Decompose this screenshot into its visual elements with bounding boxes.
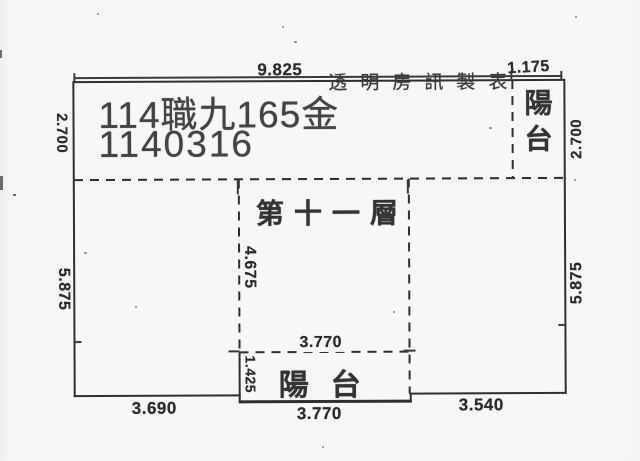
scan-speck <box>97 13 99 15</box>
balcony-bottom-right-wall <box>410 393 412 402</box>
floor-level-label: 第十一層 <box>256 192 408 233</box>
outer-wall-right <box>563 79 566 394</box>
outer-wall-bottom-right <box>410 392 567 395</box>
scan-speck <box>393 311 395 313</box>
dim-inner-width: 3.770 <box>296 334 345 352</box>
dim-bottom-middle: 3.770 <box>297 404 342 424</box>
dim-tick <box>229 350 240 352</box>
balcony-tr-left-dashed <box>511 80 513 177</box>
date-code-label: 1140316 <box>99 123 254 166</box>
scan-speck <box>575 16 577 18</box>
scan-speck <box>322 446 324 448</box>
dim-bottom-right: 3.540 <box>459 395 504 415</box>
scan-edge-smudge <box>0 176 3 190</box>
outer-wall-left <box>72 81 75 397</box>
dim-tick <box>560 71 562 80</box>
dim-inner-height: 4.675 <box>240 246 258 289</box>
dim-balcony-height: 1.425 <box>243 355 259 393</box>
dim-right-upper: 2.700 <box>568 119 585 159</box>
scan-speck <box>135 306 137 308</box>
publisher-watermark: 透明房訊製表 <box>328 67 520 95</box>
dim-tick <box>75 341 81 343</box>
scan-speck <box>294 41 297 43</box>
balcony-bottom-left-wall <box>239 352 241 402</box>
balcony-top-right-label: 陽台 <box>516 88 556 160</box>
floor-plan-drawing: 9.825 1.175 2.700 5.875 2.700 5.875 4.67… <box>0 0 640 461</box>
inner-room-right-dashed <box>408 179 411 394</box>
dim-right-lower: 5.875 <box>568 262 586 305</box>
scan-speck <box>282 26 284 28</box>
scan-speck <box>574 179 576 181</box>
scan-speck <box>84 252 87 254</box>
balcony-bottom-label: 陽台 <box>279 360 383 404</box>
scan-edge-smudge <box>13 194 16 196</box>
dim-top-main: 9.825 <box>257 60 302 80</box>
dim-bottom-left: 3.690 <box>132 399 177 419</box>
dim-tick <box>558 324 564 326</box>
dim-tick <box>73 73 75 82</box>
dim-tick <box>404 350 416 352</box>
outer-wall-bottom-left <box>74 394 241 397</box>
dim-tick <box>237 180 239 194</box>
dim-left-lower: 5.875 <box>54 268 72 311</box>
dim-left-upper: 2.700 <box>53 113 70 153</box>
partition-dashed-mid <box>74 177 564 181</box>
scan-speck <box>489 127 492 129</box>
scanned-floor-plan-sheet: 9.825 1.175 2.700 5.875 2.700 5.875 4.67… <box>0 0 640 460</box>
scan-edge-smudge <box>0 50 2 58</box>
